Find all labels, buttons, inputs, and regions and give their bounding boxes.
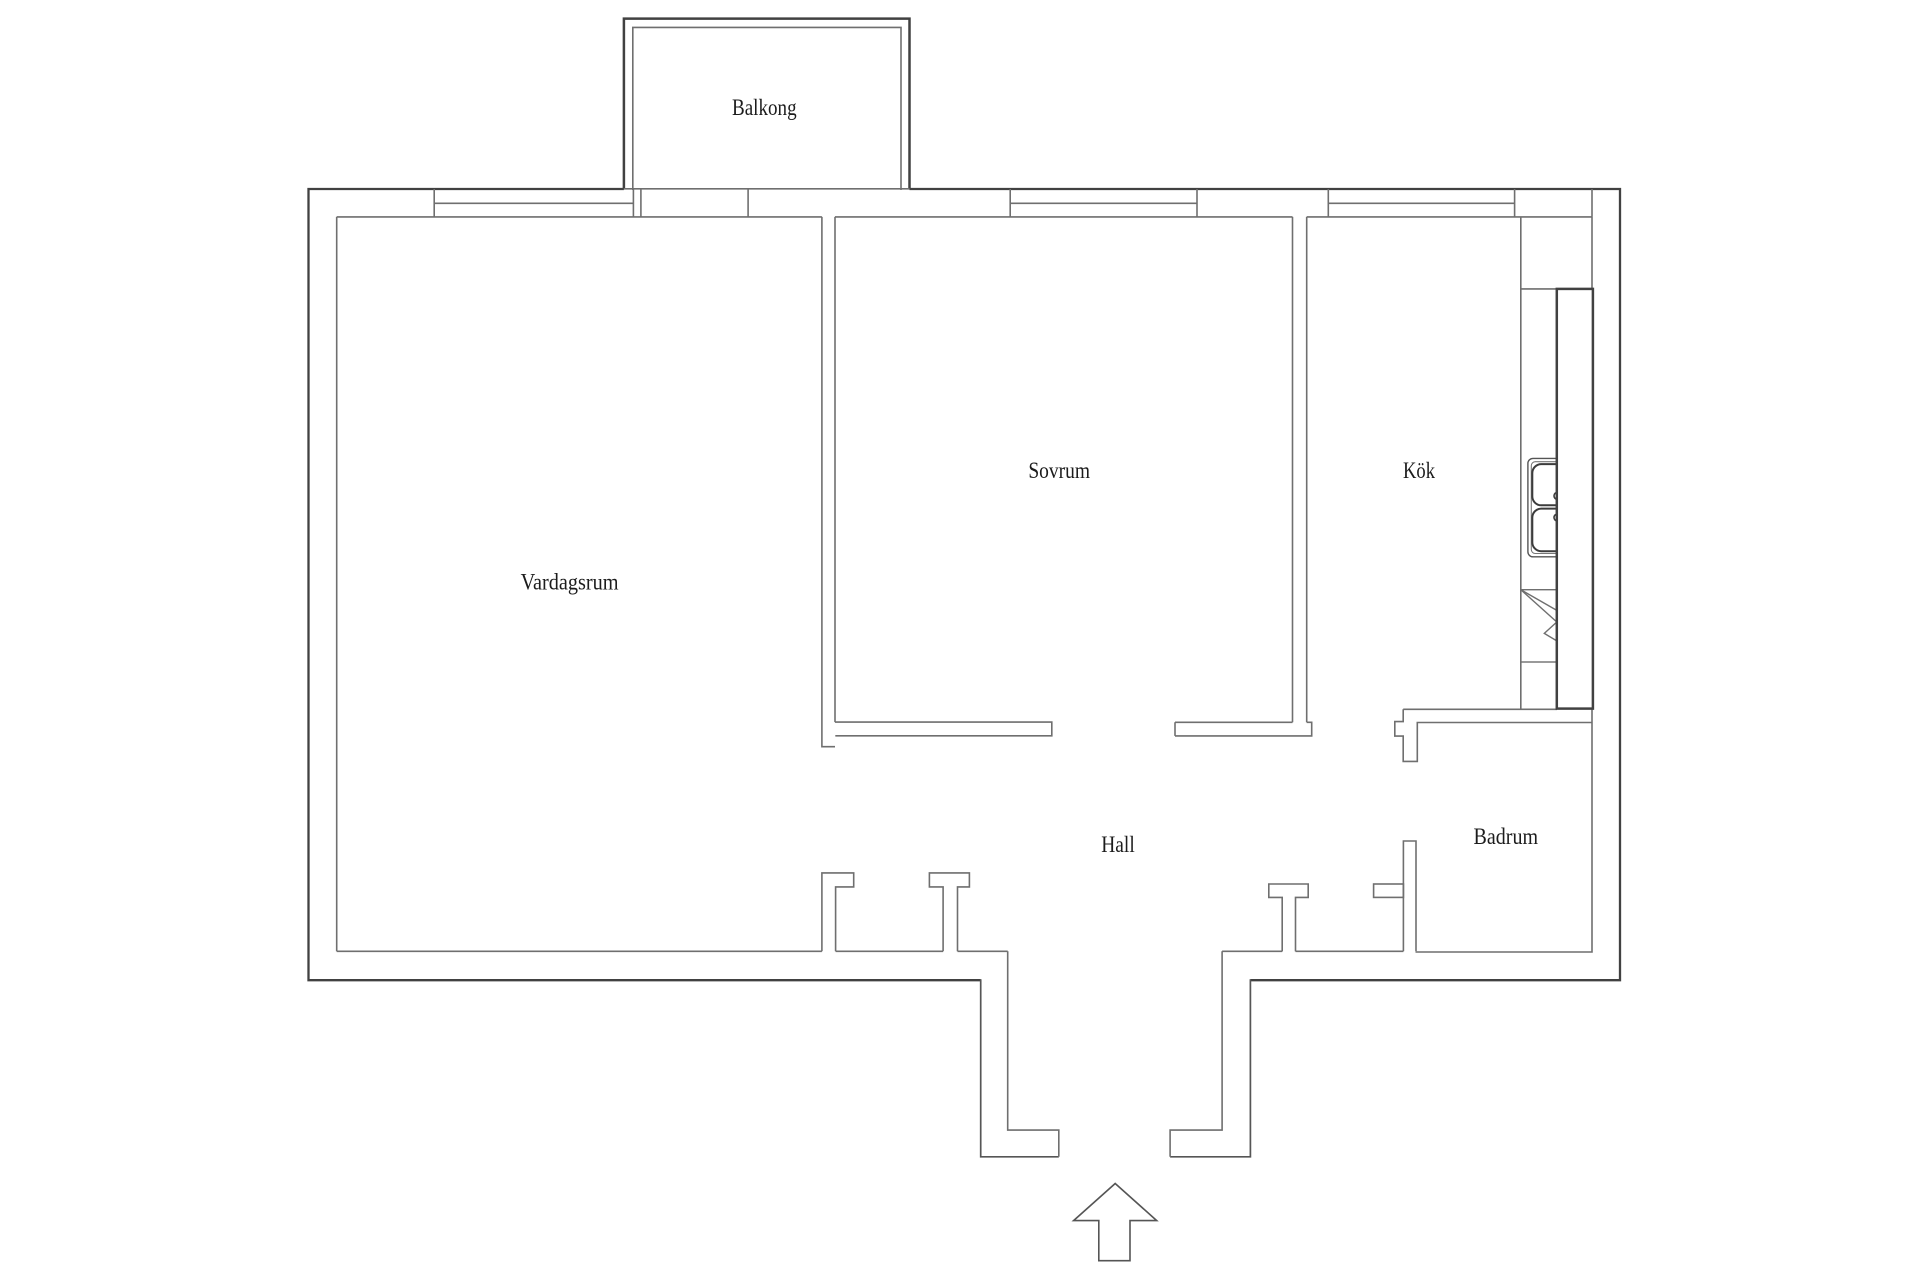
svg-text:Sovrum: Sovrum — [1028, 458, 1090, 484]
svg-text:Badrum: Badrum — [1474, 824, 1539, 850]
svg-text:Balkong: Balkong — [732, 95, 797, 121]
svg-text:Hall: Hall — [1101, 832, 1135, 858]
svg-text:Vardagsrum: Vardagsrum — [521, 570, 619, 596]
svg-text:Kök: Kök — [1403, 458, 1435, 484]
